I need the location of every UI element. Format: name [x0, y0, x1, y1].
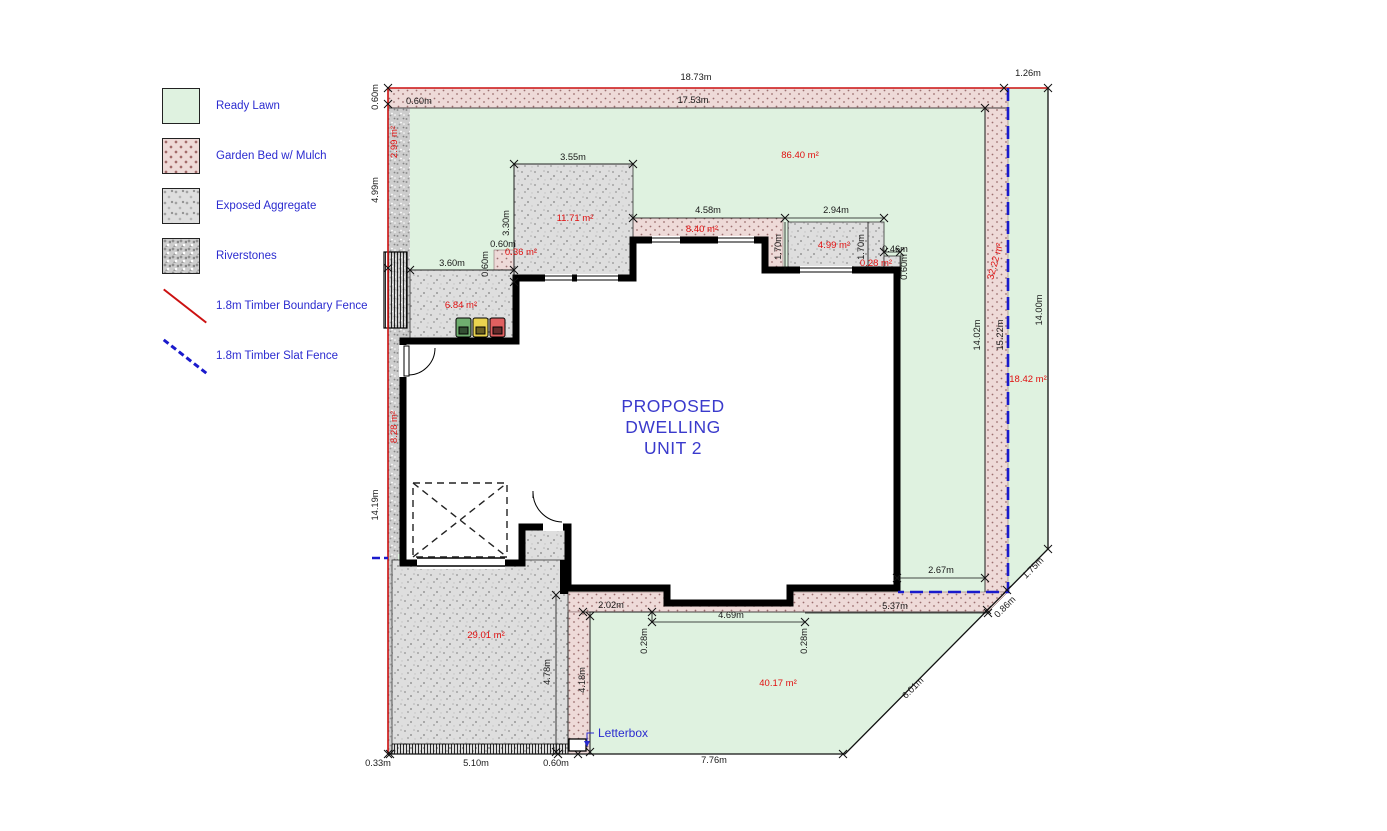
area-strip-left: 8.28 m² — [389, 411, 400, 443]
dim-bottom-drive: 5.10m — [463, 758, 489, 768]
area-lawn-south: 40.17 m² — [759, 678, 797, 689]
area-agg-small-right: 0.28 m² — [860, 258, 892, 269]
area-bed-mid: 8.40 m² — [686, 224, 718, 235]
dim-top-total: 18.73m — [680, 72, 711, 82]
area-agg-top: 11.71 m² — [557, 213, 594, 224]
area-drive: 29.01 m² — [467, 630, 505, 641]
dim-agg-left: 3.30m — [501, 210, 511, 236]
title-line-2: DWELLING — [625, 417, 720, 437]
dim-right-outer: 14.00m — [1034, 294, 1044, 325]
dim-left-strip-w: 0.60m — [370, 84, 380, 110]
dim-drive-height: 4.78m — [542, 659, 552, 685]
site-plan: 18.73m 1.26m 17.53m 0.60m 0.60m 4.99m 14… — [0, 0, 1387, 831]
dim-left-lower: 14.19m — [370, 489, 380, 520]
title-line-1: PROPOSED — [621, 396, 724, 416]
area-lawn-right: 18.42 m² — [1009, 374, 1047, 385]
area-agg-right: 4.99 m² — [818, 240, 850, 251]
dim-small-right-h: 0.60m — [899, 254, 909, 280]
area-lawn-main: 86.40 m² — [781, 150, 819, 161]
dim-south-strip: 5.37m — [882, 601, 908, 611]
area-agg-bins: 6.84 m² — [445, 300, 477, 311]
dim-left-upper: 4.99m — [370, 177, 380, 203]
area-strip-top-left: 2.99 m² — [389, 126, 400, 158]
dim-bin-width: 3.60m — [439, 258, 465, 268]
letterbox-label: Letterbox — [598, 726, 648, 740]
dim-bed-small-h: 0.60m — [480, 251, 490, 277]
dim-lawn-left-h: 4.18m — [577, 667, 587, 693]
dim-south-mid: 4.69m — [718, 610, 744, 620]
bins — [456, 318, 505, 337]
dim-bed-mid: 4.58m — [695, 205, 721, 215]
dim-south-left: 2.02m — [598, 600, 624, 610]
dim-top-strip-w: 0.60m — [406, 96, 432, 106]
area-bed-small: 0.36 m² — [505, 247, 537, 258]
driveway-crossover-hatch — [392, 744, 568, 754]
dim-right-fence: 15.22m — [995, 319, 1005, 350]
dim-top-inner: 17.53m — [677, 95, 708, 105]
title-line-3: UNIT 2 — [644, 438, 702, 458]
dim-bed-drop-left: 1.70m — [773, 234, 783, 260]
dim-agg-right-w: 2.94m — [823, 205, 849, 215]
dim-bottom-lawn: 7.76m — [701, 755, 727, 765]
dim-top-right: 1.26m — [1015, 68, 1041, 78]
dim-agg-top: 3.55m — [560, 152, 586, 162]
dim-south-drop-1: 0.28m — [639, 628, 649, 654]
dim-bottom-margin: 0.33m — [365, 758, 391, 768]
dim-right-inner: 14.02m — [972, 319, 982, 350]
dim-se-offset: 2.67m — [928, 565, 954, 575]
garage-door — [417, 556, 505, 569]
dim-small-right-w: 0.46m — [882, 244, 908, 254]
dim-bottom-strip: 0.60m — [543, 758, 569, 768]
dim-south-drop-2: 0.28m — [799, 628, 809, 654]
dim-agg-right-h: 1.70m — [856, 234, 866, 260]
site-plan-page: Ready Lawn Garden Bed w/ Mulch Exposed A… — [0, 0, 1387, 831]
